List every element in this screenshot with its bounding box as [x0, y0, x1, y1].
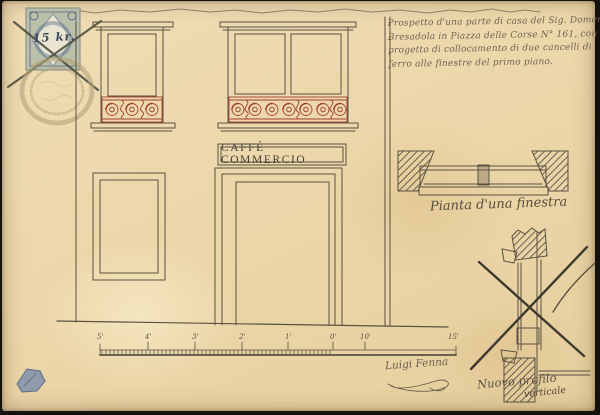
torn-paper-edge [57, 9, 540, 13]
scale-label: 5' [97, 333, 103, 341]
scale-bar [100, 342, 456, 355]
stamp-value: 15 kr. [31, 29, 78, 45]
ground-line [57, 321, 448, 327]
window-lower-left [93, 173, 165, 280]
entrance-door [215, 168, 342, 325]
scale-label: 10' [360, 333, 371, 341]
iron-railing-left [102, 97, 162, 122]
scale-label: 1' [285, 333, 291, 341]
scale-label: 15' [448, 333, 459, 341]
window-plan-detail [398, 151, 568, 195]
signature-flourish [388, 380, 448, 391]
iron-railing-right [229, 97, 347, 122]
handwritten-annotation: Prospetto d'una parte di casa del Sig. D… [388, 14, 600, 72]
embossed-seal [22, 59, 92, 123]
scale-label: 2' [239, 333, 245, 341]
profile-crossout-x-icon [471, 247, 587, 369]
scale-label: 4' [145, 333, 151, 341]
sign-text: CAFFÉ COMMERCIO [221, 146, 343, 162]
scale-label: 3' [192, 333, 198, 341]
photo-background: Prospetto d'una parte di casa del Sig. D… [0, 0, 600, 415]
ink-blot [17, 369, 45, 392]
scale-label: 0' [330, 333, 336, 341]
